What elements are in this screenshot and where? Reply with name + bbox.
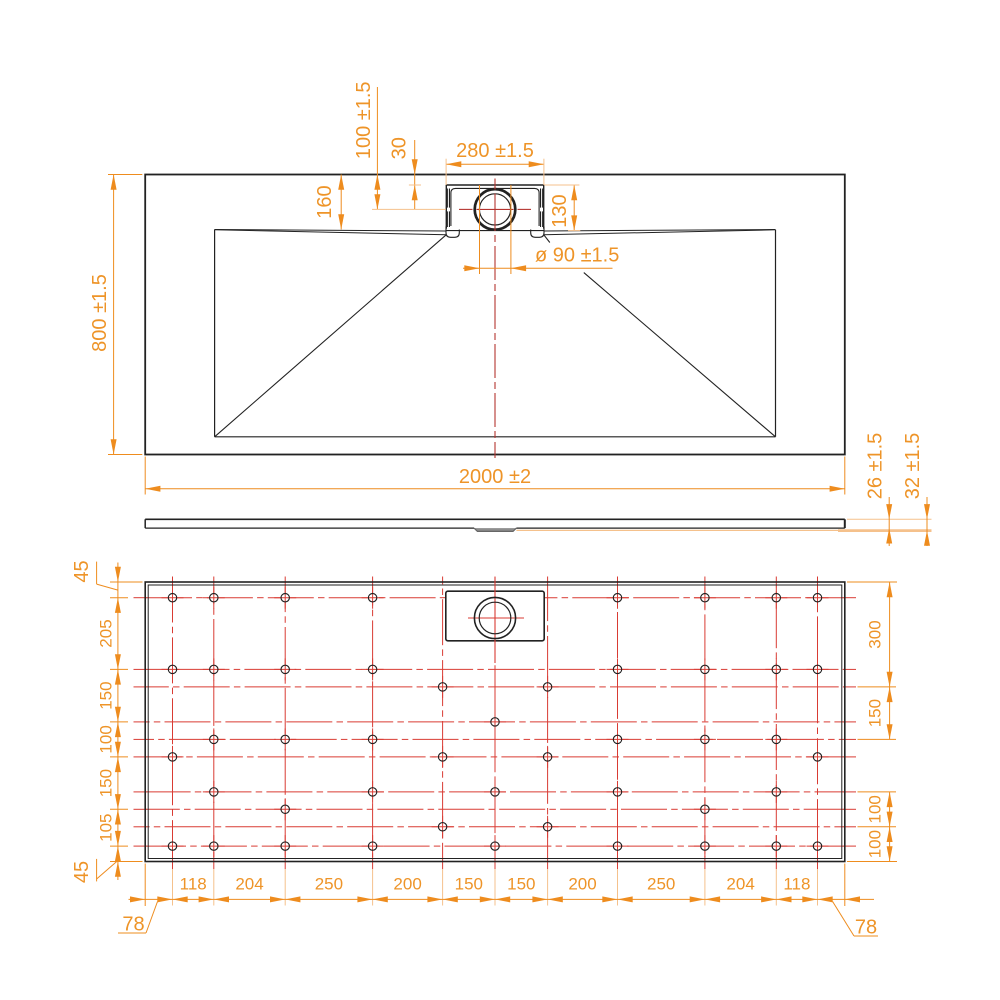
svg-text:45: 45: [71, 560, 93, 582]
svg-text:204: 204: [235, 875, 263, 894]
svg-text:250: 250: [315, 875, 343, 894]
svg-text:200: 200: [568, 875, 596, 894]
svg-text:150: 150: [97, 681, 116, 709]
svg-text:205: 205: [97, 619, 116, 647]
svg-text:26 ±1.5: 26 ±1.5: [865, 433, 887, 500]
svg-text:280 ±1.5: 280 ±1.5: [456, 140, 534, 162]
svg-text:78: 78: [855, 917, 877, 939]
svg-text:100: 100: [97, 725, 116, 753]
svg-text:150: 150: [507, 875, 535, 894]
svg-text:800 ±1.5: 800 ±1.5: [89, 274, 111, 352]
svg-text:2000 ±2: 2000 ±2: [459, 466, 531, 488]
svg-text:204: 204: [726, 875, 754, 894]
svg-text:105: 105: [97, 814, 116, 842]
svg-text:150: 150: [455, 875, 483, 894]
svg-text:118: 118: [180, 875, 207, 894]
svg-text:100: 100: [866, 830, 885, 858]
svg-text:130: 130: [549, 194, 571, 227]
svg-text:200: 200: [393, 875, 421, 894]
svg-text:300: 300: [866, 620, 885, 648]
svg-text:78: 78: [122, 914, 144, 936]
svg-text:118: 118: [783, 875, 810, 894]
svg-text:100 ±1.5: 100 ±1.5: [353, 81, 375, 159]
svg-text:30: 30: [389, 137, 411, 159]
svg-text:32 ±1.5: 32 ±1.5: [902, 433, 924, 500]
svg-text:250: 250: [647, 875, 675, 894]
svg-text:45: 45: [71, 861, 93, 883]
svg-text:ø 90 ±1.5: ø 90 ±1.5: [535, 245, 619, 267]
svg-text:160: 160: [314, 185, 336, 218]
svg-text:150: 150: [866, 699, 885, 727]
svg-text:100: 100: [866, 795, 885, 823]
svg-text:150: 150: [97, 769, 116, 797]
